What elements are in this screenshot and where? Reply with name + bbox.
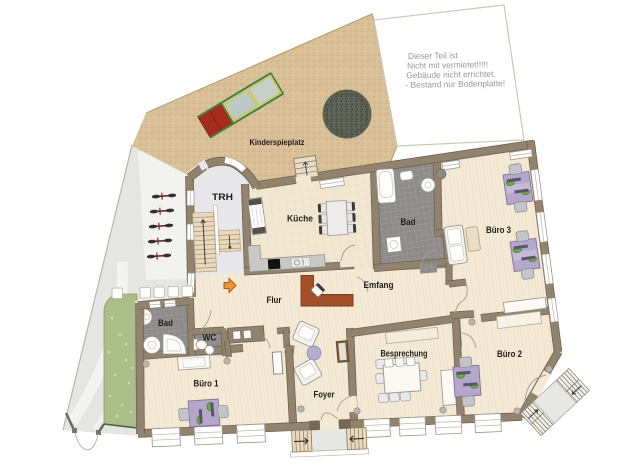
svg-text:WC: WC: [203, 333, 217, 344]
svg-text:Besprechung: Besprechung: [381, 349, 428, 360]
svg-text:Küche: Küche: [287, 214, 313, 225]
svg-text:Kinderspieplatz: Kinderspieplatz: [250, 137, 305, 147]
svg-text:Büro 2: Büro 2: [497, 349, 522, 360]
svg-text:Emfang: Emfang: [364, 280, 394, 291]
svg-text:Büro 1: Büro 1: [194, 379, 220, 390]
svg-text:Flur: Flur: [267, 295, 282, 306]
svg-text:Bad: Bad: [158, 318, 173, 329]
svg-text:- Bestand nur Bodenplatte!: - Bestand nur Bodenplatte!: [405, 78, 505, 90]
svg-text:Büro 3: Büro 3: [486, 225, 511, 236]
svg-text:Bad: Bad: [401, 217, 416, 228]
svg-text:TRH: TRH: [212, 192, 233, 203]
svg-text:Foyer: Foyer: [314, 390, 335, 401]
